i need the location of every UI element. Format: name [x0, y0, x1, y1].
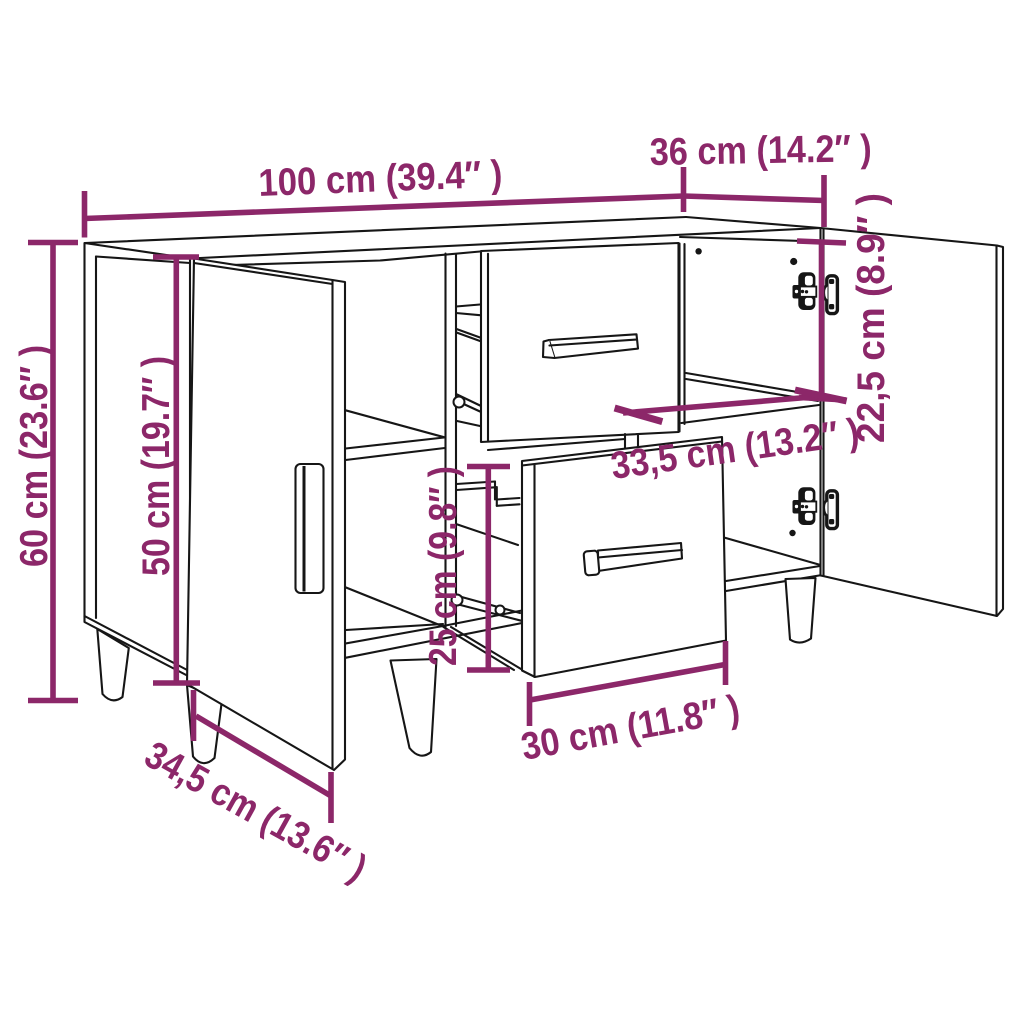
svg-text:60 cm (23.6″ ): 60 cm (23.6″ ): [13, 345, 56, 567]
svg-text:50 cm (19.7″ ): 50 cm (19.7″ ): [135, 356, 178, 576]
svg-text:25 cm (9.8″ ): 25 cm (9.8″ ): [422, 466, 465, 666]
svg-text:22,5 cm (8.9″ ): 22,5 cm (8.9″ ): [850, 193, 893, 443]
svg-text:36 cm (14.2″ ): 36 cm (14.2″ ): [649, 127, 872, 174]
